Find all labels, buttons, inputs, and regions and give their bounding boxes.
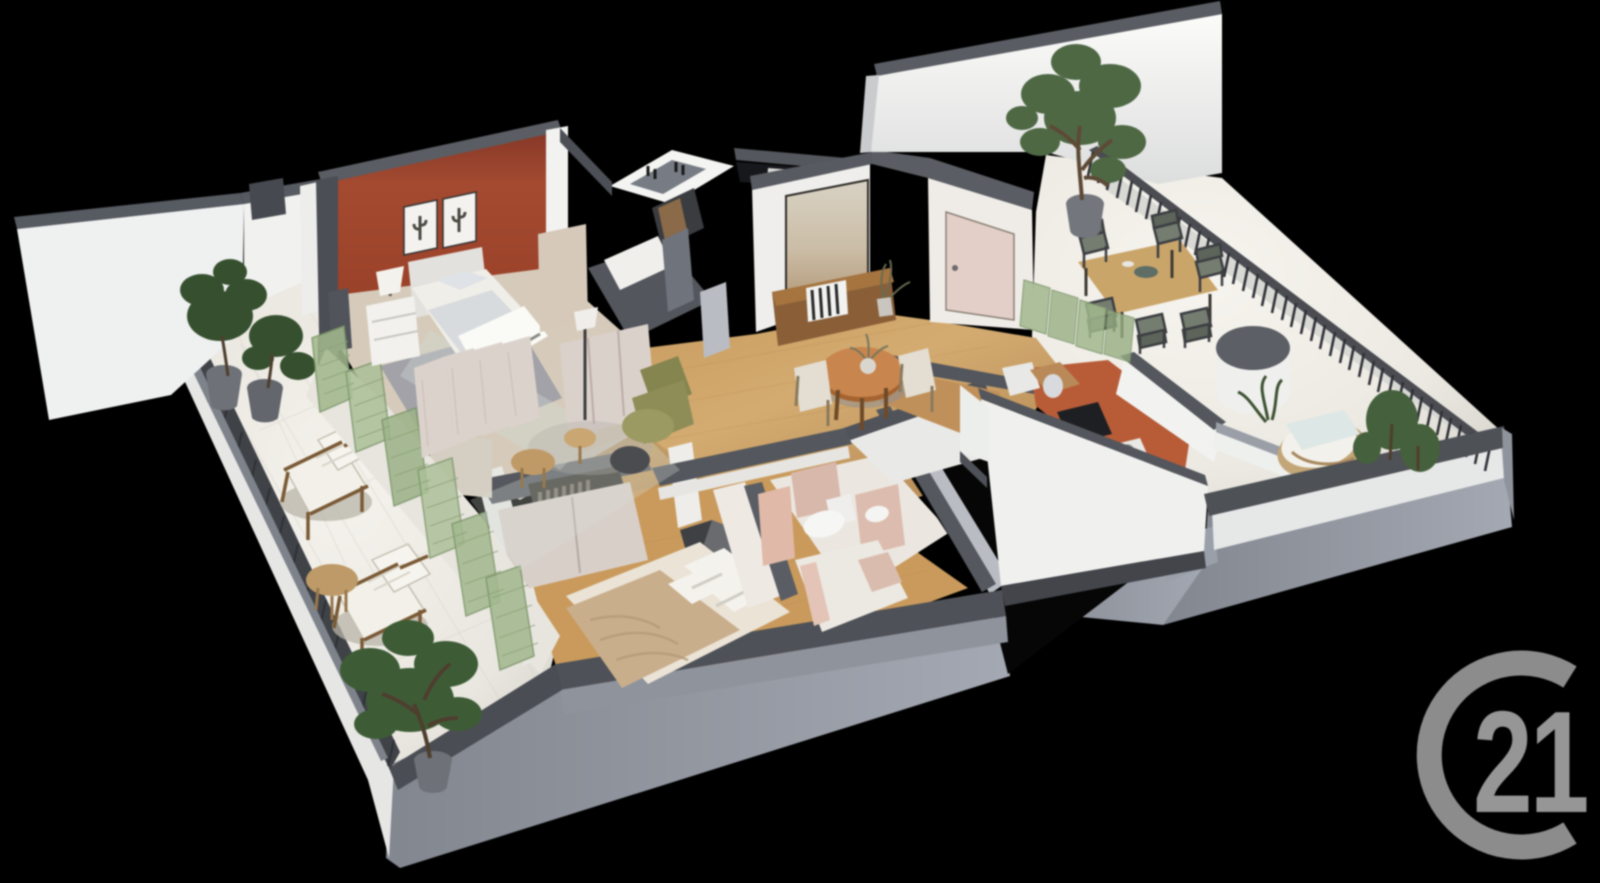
svg-text:21: 21	[1473, 682, 1587, 843]
